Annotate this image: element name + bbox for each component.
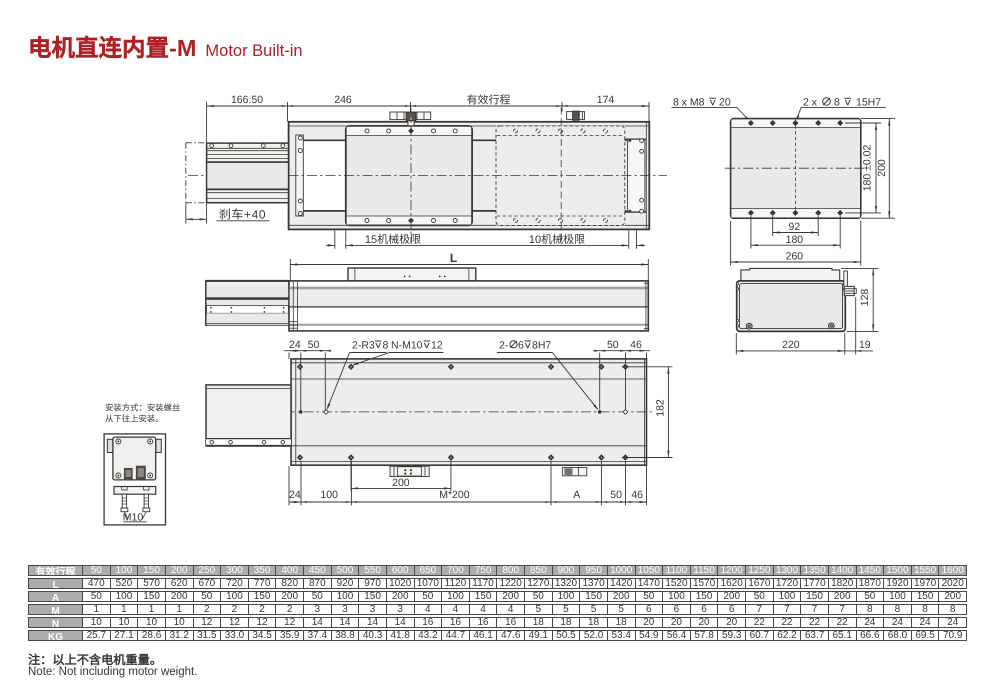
svg-text:刹车+40: 刹车+40 bbox=[219, 205, 266, 222]
svg-text:24: 24 bbox=[289, 489, 301, 501]
svg-text:180 ±0.02: 180 ±0.02 bbox=[862, 145, 874, 192]
svg-text:180: 180 bbox=[786, 234, 804, 246]
svg-text:200: 200 bbox=[876, 159, 888, 177]
svg-text:15机械极限: 15机械极限 bbox=[365, 231, 421, 247]
svg-text:46: 46 bbox=[630, 339, 642, 351]
svg-text:166.50: 166.50 bbox=[231, 94, 263, 106]
svg-text:M*200: M*200 bbox=[439, 489, 470, 501]
svg-text:8H7: 8H7 bbox=[532, 339, 551, 351]
svg-text:92: 92 bbox=[789, 221, 801, 233]
svg-text:220: 220 bbox=[782, 339, 800, 351]
svg-text:从下往上安装。: 从下往上安装。 bbox=[105, 413, 164, 425]
svg-text:128: 128 bbox=[859, 289, 871, 307]
svg-text:100: 100 bbox=[320, 489, 338, 501]
svg-text:2 x: 2 x bbox=[803, 97, 818, 109]
svg-text:8: 8 bbox=[383, 339, 389, 351]
svg-text:46: 46 bbox=[631, 489, 643, 501]
svg-text:有效行程: 有效行程 bbox=[467, 92, 511, 108]
svg-text:6: 6 bbox=[518, 339, 524, 351]
svg-text:8: 8 bbox=[834, 97, 840, 109]
svg-text:15H7: 15H7 bbox=[856, 97, 881, 109]
svg-text:A: A bbox=[573, 489, 580, 501]
svg-text:182: 182 bbox=[655, 399, 667, 417]
svg-text:50: 50 bbox=[607, 339, 619, 351]
svg-text:246: 246 bbox=[334, 94, 352, 106]
svg-text:24: 24 bbox=[289, 339, 301, 351]
svg-text:2-R3: 2-R3 bbox=[352, 339, 375, 351]
svg-text:N-M10: N-M10 bbox=[391, 339, 423, 351]
svg-text:50: 50 bbox=[610, 489, 622, 501]
svg-text:200: 200 bbox=[392, 477, 410, 489]
svg-text:19: 19 bbox=[859, 339, 871, 351]
svg-text:2-: 2- bbox=[499, 339, 509, 351]
svg-text:174: 174 bbox=[597, 94, 615, 106]
svg-text:12: 12 bbox=[431, 339, 443, 351]
svg-text:50: 50 bbox=[308, 339, 320, 351]
svg-text:260: 260 bbox=[786, 251, 804, 263]
svg-text:20: 20 bbox=[719, 97, 731, 109]
svg-text:8 x M8: 8 x M8 bbox=[673, 97, 705, 109]
svg-text:L: L bbox=[450, 251, 457, 265]
svg-text:10机械极限: 10机械极限 bbox=[529, 231, 585, 247]
